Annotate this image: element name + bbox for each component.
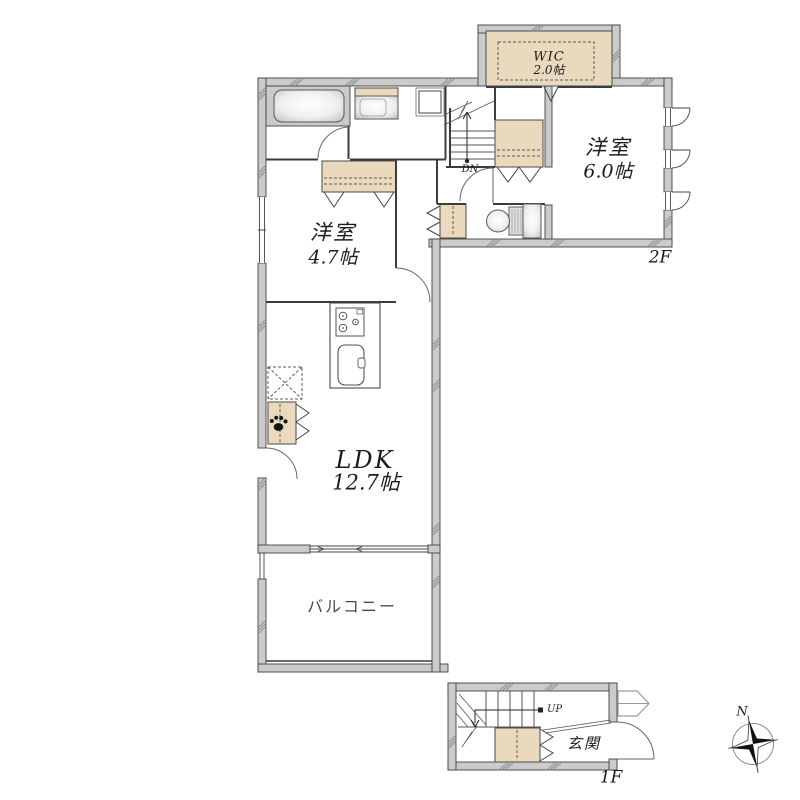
stairs-dn-label: DN [462, 165, 479, 175]
toilet-icon [487, 204, 542, 238]
bedroom6-size-label: 6.0帖 [583, 163, 632, 182]
floor-label-2f: 2F [649, 250, 672, 267]
stove-icon [336, 308, 364, 336]
bedroom47-door [396, 268, 430, 302]
bathtub-icon [274, 90, 344, 122]
closet-bedroom47 [322, 161, 396, 192]
floor-plan-drawing [0, 0, 800, 800]
entrance-door [617, 722, 654, 759]
fixtures [266, 86, 541, 661]
pet-cabinet [268, 402, 296, 444]
wic-size-label: 2.0帖 [533, 64, 564, 76]
sliding-window [310, 545, 428, 553]
bedroom6-label: 洋室 [585, 138, 631, 159]
ldk-size-label: 12.7帖 [332, 473, 400, 494]
floorplan-canvas: WIC 2.0帖 洋室 6.0帖 洋室 4.7帖 LDK 12.7帖 バルコニー… [0, 0, 800, 800]
balcony-label: バルコニー [307, 599, 397, 615]
compass-north-label: N [736, 706, 747, 719]
compass-icon [723, 711, 782, 777]
bedroom47-label: 洋室 [310, 223, 356, 244]
ldk-label: LDK [335, 448, 394, 472]
genkan-label: 玄関 [567, 737, 601, 752]
vanity-backsplash [355, 88, 398, 96]
closet-bedroom6 [495, 120, 543, 167]
stairs-2f [444, 101, 495, 163]
wic-label: WIC [533, 51, 564, 64]
porch-canopy-icon [618, 691, 649, 716]
refrigerator-space [268, 367, 302, 399]
floor-label-1f: 1F [600, 770, 623, 787]
kitchen-counter [330, 303, 380, 388]
bathroom-door [318, 127, 350, 158]
stairs-up-label: UP [547, 705, 562, 715]
ldk-side-door [266, 448, 297, 479]
bedroom47-size-label: 4.7帖 [308, 249, 357, 268]
